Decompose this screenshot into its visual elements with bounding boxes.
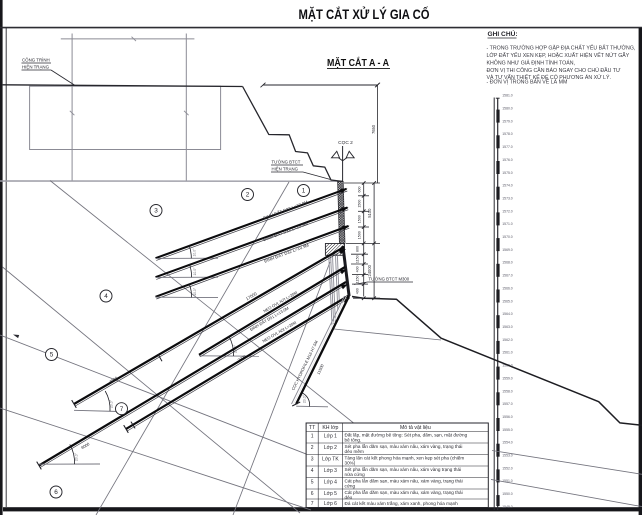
svg-text:Đất lấp, mặt đường bê tông: Sé: Đất lấp, mặt đường bê tông: Sét pha, dăm…: [345, 432, 468, 437]
svg-text:MẶT CẮT XỬ LÝ GIA CỐ: MẶT CẮT XỬ LÝ GIA CỐ: [299, 7, 430, 22]
svg-text:5: 5: [50, 352, 54, 359]
svg-text:1575.0: 1575.0: [502, 171, 512, 175]
svg-text:1554.0: 1554.0: [502, 441, 512, 445]
svg-text:4: 4: [104, 293, 108, 300]
svg-text:Cát pha lẫn dăm sạn, màu xám n: Cát pha lẫn dăm sạn, màu xám nâu, xám và…: [345, 489, 463, 495]
svg-text:1558.0: 1558.0: [502, 389, 512, 393]
svg-text:1581.0: 1581.0: [502, 94, 512, 98]
svg-text:600: 600: [358, 187, 362, 193]
svg-text:1556.0: 1556.0: [502, 415, 512, 419]
svg-text:bê tông.: bê tông.: [345, 437, 362, 442]
svg-text:HIỆN TRẠNG: HIỆN TRẠNG: [272, 167, 299, 172]
svg-text:cứng: cứng: [345, 483, 356, 488]
svg-text:1561.0: 1561.0: [502, 351, 512, 355]
svg-text:1563.0: 1563.0: [502, 325, 512, 329]
svg-text:7650: 7650: [371, 124, 376, 134]
svg-text:7: 7: [120, 406, 124, 413]
svg-text:1572.0: 1572.0: [502, 209, 512, 213]
svg-text:ĐƠN VỊ THI CÔNG CẦN BÁO NGAY C: ĐƠN VỊ THI CÔNG CẦN BÁO NGAY CHO CHỦ ĐẦU…: [487, 67, 622, 74]
svg-text:1566.0: 1566.0: [502, 286, 512, 290]
svg-text:Mô tả vật liệu: Mô tả vật liệu: [400, 425, 431, 431]
svg-text:Lớp 3: Lớp 3: [324, 468, 337, 474]
svg-text:Lớp 6: Lớp 6: [324, 501, 337, 507]
svg-text:400: 400: [356, 266, 360, 272]
svg-text:24000: 24000: [367, 264, 372, 276]
svg-text:5100: 5100: [367, 208, 372, 218]
svg-text:1500: 1500: [358, 200, 362, 208]
svg-text:Lớp 5: Lớp 5: [324, 491, 337, 497]
svg-text:nửa cứng: nửa cứng: [345, 471, 366, 477]
svg-text:5: 5: [311, 480, 314, 486]
svg-text:1574.0: 1574.0: [502, 184, 512, 188]
svg-text:KH lớp: KH lớp: [322, 425, 338, 431]
svg-text:30%): 30%): [345, 460, 356, 465]
svg-text:1: 1: [311, 434, 314, 440]
svg-text:1579.0: 1579.0: [502, 119, 512, 123]
svg-text:LỚP ĐẤT YẾU XEN KẸP, HOẶC XUẤ: LỚP ĐẤT YẾU XEN KẸP, HOẶC XUẤT HIỆN VẾT …: [487, 51, 630, 59]
svg-text:GHI CHÚ:: GHI CHÚ:: [488, 29, 518, 38]
svg-text:3: 3: [311, 457, 314, 463]
svg-text:1150: 1150: [356, 276, 360, 284]
svg-text:Đá cát kết màu xám trắng, xám: Đá cát kết màu xám trắng, xám xanh, phon…: [345, 500, 459, 506]
svg-text:Lớp 2: Lớp 2: [324, 445, 337, 451]
svg-text:1562.0: 1562.0: [502, 338, 512, 342]
svg-text:1580.0: 1580.0: [502, 107, 512, 111]
svg-text:- TRONG TRƯỜNG HỢP GẶP ĐỊA CHẤ: - TRONG TRƯỜNG HỢP GẶP ĐỊA CHẤT YẾU BẤT …: [487, 45, 636, 52]
svg-text:10.0°: 10.0°: [193, 248, 197, 257]
svg-text:MẶT CẮT A - A: MẶT CẮT A - A: [327, 56, 389, 69]
svg-text:Lớp TK: Lớp TK: [322, 457, 339, 463]
svg-text:20.0°: 20.0°: [303, 394, 307, 403]
svg-text:7: 7: [311, 501, 314, 507]
svg-text:Tảng lăn cát kết phong hóa mạn: Tảng lăn cát kết phong hóa mạnh, xen kẹp…: [345, 455, 465, 460]
svg-text:1553.0: 1553.0: [502, 454, 512, 458]
svg-text:- ĐƠN VỊ TRONG BẢN VẼ LÀ MM: - ĐƠN VỊ TRONG BẢN VẼ LÀ MM: [487, 79, 568, 86]
svg-text:1567.0: 1567.0: [502, 274, 512, 278]
svg-text:dẻo mềm: dẻo mềm: [345, 449, 364, 454]
svg-text:1576.0: 1576.0: [502, 158, 512, 162]
svg-text:2: 2: [311, 445, 314, 451]
svg-text:1557.0: 1557.0: [502, 402, 512, 406]
svg-text:1569.0: 1569.0: [502, 248, 512, 252]
svg-text:1549.0: 1549.0: [502, 505, 512, 509]
svg-text:Lớp 1: Lớp 1: [324, 434, 337, 440]
svg-text:1570.0: 1570.0: [502, 235, 512, 239]
svg-text:1564.0: 1564.0: [502, 312, 512, 316]
svg-text:1555.0: 1555.0: [502, 428, 512, 432]
svg-text:1500: 1500: [358, 215, 362, 223]
svg-text:1: 1: [302, 188, 306, 195]
svg-text:6: 6: [311, 491, 314, 497]
svg-text:CÔNG TRÌNH: CÔNG TRÌNH: [22, 58, 50, 63]
svg-text:1552.0: 1552.0: [502, 466, 512, 470]
svg-text:Lớp 4: Lớp 4: [324, 480, 337, 486]
svg-text:HIỆN TRẠNG: HIỆN TRẠNG: [22, 65, 50, 70]
svg-text:4: 4: [311, 468, 314, 474]
svg-text:1568.0: 1568.0: [502, 261, 512, 265]
svg-text:400: 400: [356, 288, 360, 294]
svg-text:TƯỜNG BTCT: TƯỜNG BTCT: [272, 160, 301, 165]
svg-text:10.0°: 10.0°: [193, 267, 197, 276]
svg-text:TT: TT: [309, 425, 316, 431]
svg-text:1500: 1500: [358, 231, 362, 239]
svg-text:1550.0: 1550.0: [502, 492, 512, 496]
svg-text:dẻo: dẻo: [345, 495, 353, 500]
svg-text:800: 800: [356, 246, 360, 252]
svg-text:1578.0: 1578.0: [502, 132, 512, 136]
svg-text:1577.0: 1577.0: [502, 145, 512, 149]
svg-text:20.0°: 20.0°: [75, 452, 79, 461]
svg-text:1571.0: 1571.0: [502, 222, 512, 226]
svg-text:1559.0: 1559.0: [502, 376, 512, 380]
svg-text:10.0°: 10.0°: [193, 287, 197, 296]
svg-text:3: 3: [154, 208, 158, 215]
svg-text:1565.0: 1565.0: [502, 299, 512, 303]
svg-text:20.0°: 20.0°: [110, 399, 114, 408]
svg-text:1573.0: 1573.0: [502, 197, 512, 201]
svg-text:6: 6: [54, 489, 58, 496]
svg-text:1150: 1150: [356, 255, 360, 263]
svg-text:KHÔNG NHƯ GIẢ ĐỊNH TÍNH TOÁN,: KHÔNG NHƯ GIẢ ĐỊNH TÍNH TOÁN,: [487, 60, 576, 67]
svg-text:CỌC 2: CỌC 2: [338, 140, 353, 146]
svg-text:2: 2: [246, 192, 250, 199]
svg-text:TƯỜNG BTCT M300: TƯỜNG BTCT M300: [369, 277, 410, 282]
svg-text:Cát pha lẫn dăm sạn, màu xám n: Cát pha lẫn dăm sạn, màu xám nâu, xám và…: [345, 477, 463, 483]
